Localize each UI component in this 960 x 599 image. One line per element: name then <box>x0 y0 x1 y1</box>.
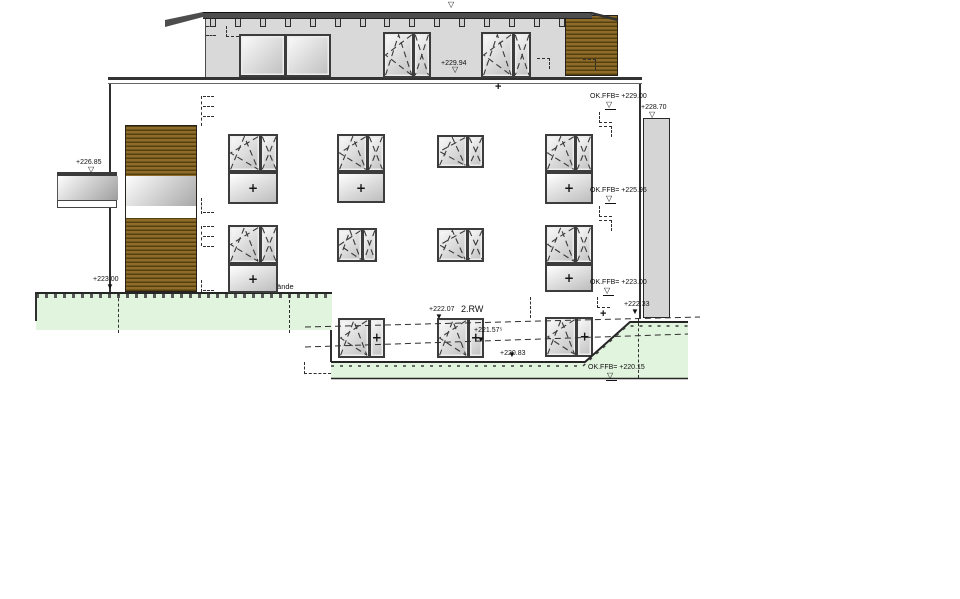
section-mark <box>597 297 610 308</box>
section-mark <box>203 246 214 247</box>
survey-cross-icon: + <box>495 82 501 93</box>
level-marker-filled-icon: ▼ <box>631 308 639 316</box>
level-marker-filled-icon: ▼ <box>435 313 443 321</box>
glass-pane <box>547 319 575 355</box>
glass-pane <box>547 136 574 170</box>
glass-pane: + <box>578 319 591 355</box>
level-label: OK.FFB= +220.15 <box>588 364 645 372</box>
roof-overhang <box>165 12 203 27</box>
level-label: OK.FFB= +225.95 <box>590 187 647 195</box>
level-marker-open-icon: ▽ <box>452 66 458 74</box>
level-marker-open-icon: ▽ <box>606 372 617 381</box>
level-marker-open-icon: ▽ <box>605 101 616 110</box>
terrain-hatch <box>36 294 332 298</box>
glass-pane <box>439 230 466 260</box>
section-mark <box>201 226 202 246</box>
window <box>337 134 385 172</box>
glass-pane <box>577 136 591 170</box>
spandrel-panel: + <box>228 172 278 204</box>
section-mark <box>203 290 214 291</box>
level-marker-filled-icon: ▼ <box>477 336 485 344</box>
glass-pane <box>230 227 259 262</box>
window <box>337 228 377 262</box>
level-marker-filled-icon: ▼ <box>508 351 516 359</box>
section-mark <box>203 226 214 227</box>
basement-window: + <box>338 318 385 358</box>
window <box>228 134 278 172</box>
spandrel-panel: + <box>337 172 385 203</box>
glass-pane <box>339 230 361 260</box>
glass-pane <box>469 137 482 166</box>
rw-label: 2.RW <box>461 304 483 314</box>
section-mark <box>203 212 214 213</box>
glass-pane <box>339 136 366 170</box>
spandrel-panel: + <box>228 264 278 293</box>
section-mark <box>599 126 612 137</box>
glass-pane <box>385 34 412 76</box>
glass-pane <box>547 227 574 262</box>
survey-cross-icon: + <box>600 309 606 320</box>
section-mark <box>599 220 612 231</box>
level-marker-filled-icon: ▼ <box>106 283 114 291</box>
glass-pane <box>287 36 330 75</box>
floor-slab <box>108 77 642 84</box>
section-mark <box>537 58 550 69</box>
pane-cross: + <box>564 181 574 195</box>
sliding-door <box>239 34 331 77</box>
glass-pane <box>262 136 276 170</box>
roof-fascia <box>203 12 592 19</box>
glass-pane <box>241 36 284 75</box>
elevation-drawing: + + + + + <box>0 0 960 599</box>
section-mark <box>203 96 214 97</box>
level-marker-open-icon: ▽ <box>88 166 94 174</box>
window <box>481 32 531 78</box>
section-mark <box>201 198 202 214</box>
glass-pane <box>577 227 591 262</box>
section-mark <box>206 35 216 36</box>
section-mark <box>599 206 612 217</box>
glass-pane <box>469 230 482 260</box>
section-mark <box>583 59 596 70</box>
canopy-strip <box>57 200 117 208</box>
window <box>545 134 593 172</box>
glass-pane <box>340 320 368 356</box>
pillar <box>643 118 670 318</box>
level-label: OK.FFB= +229.00 <box>590 93 647 101</box>
section-mark <box>304 373 331 374</box>
section-mark <box>530 297 531 318</box>
level-label: OK.FFB= +223.00 <box>590 279 647 287</box>
section-mark <box>289 295 290 333</box>
section-mark <box>201 280 202 292</box>
window <box>545 225 593 264</box>
window <box>437 135 484 168</box>
terrain-left-end <box>35 292 37 321</box>
glass-pane <box>364 230 375 260</box>
section-mark <box>226 26 239 37</box>
section-mark <box>201 96 202 126</box>
pane-cross: + <box>564 271 574 285</box>
level-label: +221.57⁵ <box>474 327 502 335</box>
pane-cross: + <box>248 181 258 195</box>
level-marker-open-icon: ▽ <box>605 195 616 204</box>
window <box>437 228 484 262</box>
wall-band <box>126 206 196 218</box>
section-mark <box>203 236 214 237</box>
section-mark <box>118 293 119 333</box>
glass-pane <box>483 34 512 76</box>
level-marker-open-icon: ▽ <box>603 287 614 296</box>
level-marker-open-icon: ▽ <box>448 1 454 9</box>
glass-pane: + <box>371 320 384 356</box>
glass-pane <box>230 136 259 170</box>
glass-pane <box>415 34 429 76</box>
pane-cross: + <box>580 329 590 343</box>
section-mark <box>203 116 214 117</box>
glass-pane <box>515 34 529 76</box>
glass-pane <box>439 137 466 166</box>
window-band <box>126 176 196 206</box>
pane-cross: + <box>356 181 366 195</box>
window <box>228 225 278 264</box>
section-mark <box>599 112 612 123</box>
glass-pane <box>262 227 276 262</box>
window <box>383 32 431 78</box>
pane-cross: + <box>248 272 258 286</box>
spandrel-panel: + <box>545 172 593 204</box>
canopy-glass <box>57 176 118 200</box>
basement-window: + <box>545 317 593 357</box>
glass-pane <box>439 320 467 356</box>
level-marker-open-icon: ▽ <box>649 111 655 119</box>
glass-pane <box>369 136 383 170</box>
pane-cross: + <box>372 330 382 344</box>
section-mark <box>203 106 214 107</box>
spandrel-panel: + <box>545 264 593 292</box>
